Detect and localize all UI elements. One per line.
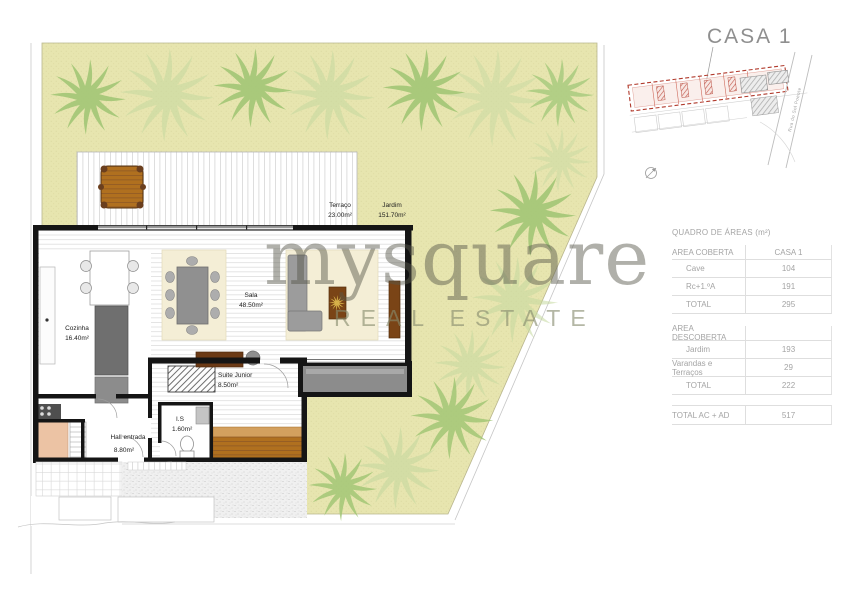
room-label-jardim: Jardim bbox=[382, 202, 402, 209]
north-arrow-icon bbox=[646, 168, 657, 179]
table-section-row: AREA DESCOBERTA bbox=[672, 326, 832, 341]
row-label: Cave bbox=[672, 260, 745, 277]
row-label: TOTAL bbox=[672, 296, 745, 313]
suite-deck bbox=[213, 437, 302, 458]
stairs-landing bbox=[38, 422, 68, 460]
table-row: TOTAL 295 bbox=[672, 296, 832, 314]
suite-deck-step bbox=[213, 427, 302, 437]
row-label: Rc+1.ºA bbox=[672, 278, 745, 295]
room-area-sala: 48.50m² bbox=[239, 302, 264, 309]
watermark-tagline: REAL ESTATE bbox=[334, 305, 596, 332]
toilet-tank bbox=[180, 451, 194, 458]
empty-cell bbox=[745, 326, 831, 340]
sofa-chaise bbox=[288, 311, 322, 331]
driveway bbox=[18, 462, 307, 527]
paving-tiles bbox=[36, 462, 122, 496]
room-label-sala: Sala bbox=[244, 292, 257, 299]
row-value: 29 bbox=[745, 359, 831, 376]
uncovered-header: AREA DESCOBERTA bbox=[672, 326, 745, 340]
room-label-suite: Suite Junior bbox=[218, 372, 253, 379]
grand-total-row: TOTAL AC + AD 517 bbox=[672, 405, 832, 425]
row-label: Jardim bbox=[672, 341, 745, 358]
neighbor-lots bbox=[634, 106, 729, 133]
room-area-cozinha: 16.40m² bbox=[65, 335, 90, 342]
room-label-is: I.S bbox=[176, 416, 185, 423]
table-header-row: AREA COBERTA CASA 1 bbox=[672, 245, 832, 260]
row-value: 222 bbox=[745, 377, 831, 394]
stove bbox=[36, 404, 61, 419]
kitchen-counter bbox=[40, 267, 55, 364]
toilet bbox=[181, 436, 194, 452]
row-label: Varandas e Terraços bbox=[672, 359, 745, 376]
kitchen-island-table bbox=[90, 251, 129, 305]
watermark-brand: mysquare bbox=[264, 220, 650, 296]
table-row: Rc+1.ºA 191 bbox=[672, 278, 832, 296]
table-row: TOTAL 222 bbox=[672, 377, 832, 395]
row-label: TOTAL bbox=[672, 377, 745, 394]
room-label-cozinha: Cozinha bbox=[65, 325, 89, 332]
grand-total-value: 517 bbox=[745, 406, 831, 424]
areas-table: QUADRO DE ÁREAS (m²) AREA COBERTA CASA 1… bbox=[672, 226, 832, 425]
existing-building bbox=[740, 75, 768, 93]
unit-header: CASA 1 bbox=[745, 245, 831, 259]
room-area-is: 1.60m² bbox=[172, 426, 193, 433]
table-row: Varandas e Terraços 29 bbox=[672, 359, 832, 377]
outdoor-table bbox=[98, 166, 146, 209]
wardrobe bbox=[168, 366, 215, 392]
table-row: Cave 104 bbox=[672, 260, 832, 278]
row-value: 295 bbox=[745, 296, 831, 313]
table-row: Jardim 193 bbox=[672, 341, 832, 359]
room-label-hall: Hall entrada bbox=[110, 434, 145, 441]
kitchen-island-cabinet bbox=[95, 306, 128, 375]
existing-building bbox=[751, 96, 779, 116]
row-value: 104 bbox=[745, 260, 831, 277]
garage-slab bbox=[118, 497, 214, 522]
covered-header: AREA COBERTA bbox=[672, 245, 745, 259]
sink-tap bbox=[45, 318, 48, 321]
areas-table-title: QUADRO DE ÁREAS (m²) bbox=[672, 226, 832, 245]
floorplan-sheet: Terraço 23.00m² Jardim 151.70m² Cozinha … bbox=[0, 0, 842, 595]
row-value: 193 bbox=[745, 341, 831, 358]
site-plan-title: CASA 1 bbox=[707, 25, 793, 49]
sink bbox=[196, 407, 209, 424]
existing-building bbox=[768, 70, 789, 84]
room-area-suite: 8.50m² bbox=[218, 382, 239, 389]
site-plan-map: Rua do Sol Poente bbox=[626, 47, 812, 179]
road-label: Rua do Sol Poente bbox=[787, 87, 802, 132]
room-area-hall: 8.80m² bbox=[114, 447, 135, 454]
row-value: 191 bbox=[745, 278, 831, 295]
room-label-terraco: Terraço bbox=[329, 202, 351, 209]
dining-table bbox=[177, 267, 208, 324]
balcony bbox=[301, 364, 410, 395]
grand-total-label: TOTAL AC + AD bbox=[672, 406, 745, 424]
entrance-step bbox=[128, 462, 186, 470]
